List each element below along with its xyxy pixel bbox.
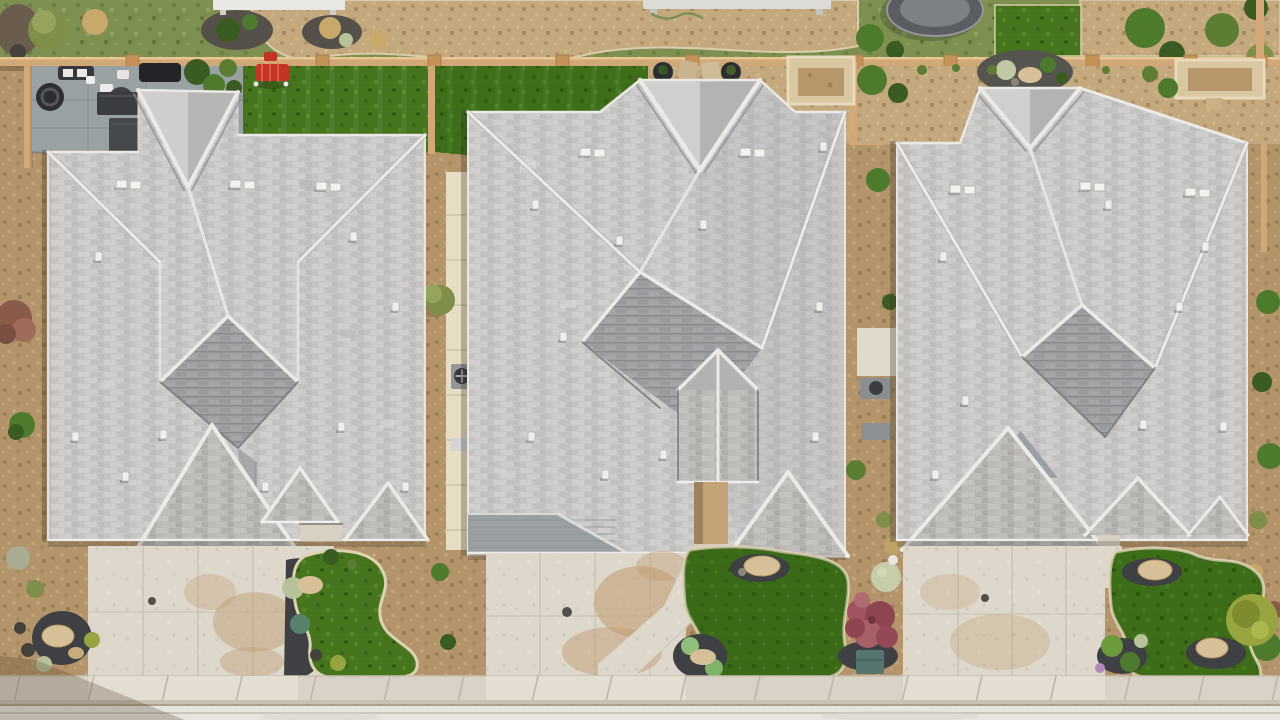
roof-vent <box>350 232 357 241</box>
house-center <box>461 80 848 560</box>
roof-vent <box>392 302 399 311</box>
roof-vent <box>962 396 969 405</box>
fence-divider <box>428 66 435 154</box>
aerial-photo-canvas <box>0 0 1280 720</box>
boulder <box>297 576 323 594</box>
roof-vent <box>532 200 539 209</box>
curb <box>0 700 1280 704</box>
roof-vent <box>1202 242 1209 251</box>
ac-unit <box>861 423 891 440</box>
skylight <box>130 181 141 189</box>
roof-vent <box>528 432 535 441</box>
house-right <box>890 88 1248 557</box>
white-structure <box>643 0 831 9</box>
skylight <box>754 149 765 157</box>
boulder <box>744 556 780 576</box>
roof-vent <box>940 252 947 261</box>
tree <box>1125 8 1165 48</box>
utility-box <box>856 650 884 674</box>
roof-vent <box>616 236 623 245</box>
driveway-apron <box>486 676 686 702</box>
lounge-chair <box>677 59 698 80</box>
red-lounger <box>256 64 289 81</box>
fire-table <box>36 83 64 111</box>
skylight <box>330 183 341 191</box>
roof-vent <box>816 302 823 311</box>
roof-vent <box>72 432 79 441</box>
skylight <box>1185 188 1196 196</box>
entry-porch <box>300 524 342 542</box>
skylight <box>950 185 961 193</box>
patio-chair <box>117 70 129 79</box>
skylight <box>316 182 327 190</box>
boulder <box>1196 638 1228 658</box>
skylight <box>580 148 591 156</box>
skylight <box>740 148 751 156</box>
roof-vent <box>1176 302 1183 311</box>
skylight <box>1080 182 1091 190</box>
white-planter <box>213 0 345 10</box>
bbq-grill <box>139 63 181 82</box>
roof-vent <box>338 422 345 431</box>
boulder <box>1138 560 1172 580</box>
front-yards <box>14 546 1278 678</box>
aerial-photograph: Top-down aerial drone photograph of thre… <box>0 0 1280 720</box>
roof-vent <box>820 142 827 151</box>
sage-bush <box>871 562 901 592</box>
roof-vent <box>122 472 129 481</box>
skylight <box>594 149 605 157</box>
red-item-on-fence <box>264 52 277 61</box>
house-left <box>42 90 428 558</box>
roof-vent <box>262 482 269 491</box>
roof-vent <box>700 220 707 229</box>
skylight <box>1199 189 1210 197</box>
roof-vent <box>1140 420 1147 429</box>
skylight <box>964 186 975 194</box>
skylight <box>116 180 127 188</box>
lawn-patch <box>995 5 1081 56</box>
roof-vent <box>932 470 939 479</box>
roof-vent <box>602 470 609 479</box>
driveway-apron <box>903 676 1105 702</box>
lounge-chair <box>701 61 721 81</box>
skylight <box>1094 183 1105 191</box>
roof-vent <box>1105 200 1112 209</box>
roof-vent <box>560 332 567 341</box>
skylight <box>244 181 255 189</box>
skylight <box>230 180 241 188</box>
roof-vent <box>1220 422 1227 431</box>
roof-vent <box>95 252 102 261</box>
roof-vent <box>660 450 667 459</box>
roof-vent <box>402 482 409 491</box>
boulder <box>42 625 74 647</box>
roof-vent <box>812 432 819 441</box>
roof-vent <box>160 430 167 439</box>
